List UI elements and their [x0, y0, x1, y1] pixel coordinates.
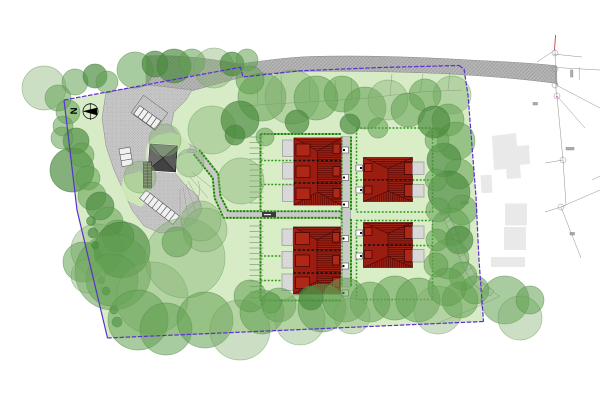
svg-text:N: N: [68, 108, 79, 115]
